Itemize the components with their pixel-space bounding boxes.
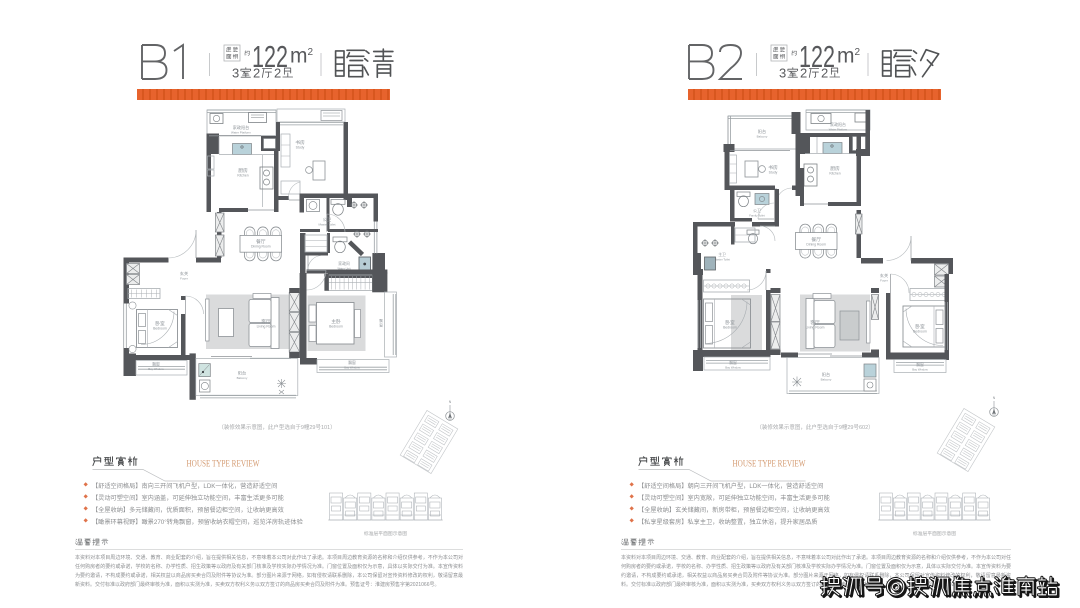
svg-text:Study: Study — [769, 171, 778, 175]
svg-text:Foyer: Foyer — [880, 279, 888, 283]
svg-text:Bedroom: Bedroom — [723, 326, 737, 330]
svg-text:Family Toilet: Family Toilet — [749, 214, 765, 218]
svg-text:HOUSE TYPE REVIEW: HOUSE TYPE REVIEW — [187, 459, 260, 469]
svg-text:飘窗: 飘窗 — [916, 362, 924, 367]
svg-text:Bedroom: Bedroom — [913, 330, 927, 334]
svg-text:N: N — [448, 400, 451, 404]
svg-text:Foyer: Foyer — [180, 277, 188, 281]
svg-text:2: 2 — [800, 66, 807, 81]
svg-text:家政间: 家政间 — [338, 261, 350, 266]
svg-text:Study: Study — [296, 146, 305, 150]
svg-text:Water Platform: Water Platform — [829, 128, 848, 132]
svg-text:Living Room: Living Room — [257, 325, 276, 329]
svg-text:Bedroom: Bedroom — [153, 327, 167, 331]
svg-text:Balcony: Balcony — [757, 135, 768, 139]
svg-text:Kitchen: Kitchen — [829, 172, 840, 176]
svg-text:Dining Room: Dining Room — [806, 243, 826, 247]
svg-text:N: N — [992, 396, 995, 400]
svg-text:2: 2 — [855, 47, 861, 58]
svg-text:家政阳台: 家政阳台 — [830, 121, 846, 127]
svg-text:Bay Window: Bay Window — [148, 367, 165, 371]
svg-text:3: 3 — [779, 66, 786, 81]
svg-text:m: m — [837, 45, 855, 68]
svg-text:飘窗: 飘窗 — [348, 360, 356, 365]
svg-text:Kitchen: Kitchen — [237, 174, 248, 178]
svg-text:Bay Window: Bay Window — [344, 366, 361, 370]
svg-text:Balcony: Balcony — [237, 376, 248, 380]
svg-text:Dining Room: Dining Room — [251, 245, 271, 249]
svg-text:Bay Window: Bay Window — [725, 366, 742, 370]
svg-text:主卫: 主卫 — [718, 252, 726, 257]
svg-text:2: 2 — [821, 66, 828, 81]
svg-text:公卫: 公卫 — [753, 208, 761, 213]
svg-text:HOUSE TYPE REVIEW: HOUSE TYPE REVIEW — [733, 459, 806, 469]
svg-text:飘窗: 飘窗 — [152, 362, 160, 367]
svg-text:窗: 窗 — [379, 323, 383, 328]
svg-text:Water Platform: Water Platform — [231, 131, 251, 135]
svg-text:Living Room: Living Room — [806, 326, 825, 330]
svg-text:Bedroom: Bedroom — [329, 325, 343, 329]
svg-text:飘: 飘 — [379, 318, 383, 323]
svg-text:飘窗: 飘窗 — [729, 360, 737, 365]
svg-text:Bay Window: Bay Window — [912, 368, 929, 372]
svg-text:Balcony: Balcony — [821, 378, 832, 382]
svg-text:Master Toilet: Master Toilet — [714, 258, 730, 262]
